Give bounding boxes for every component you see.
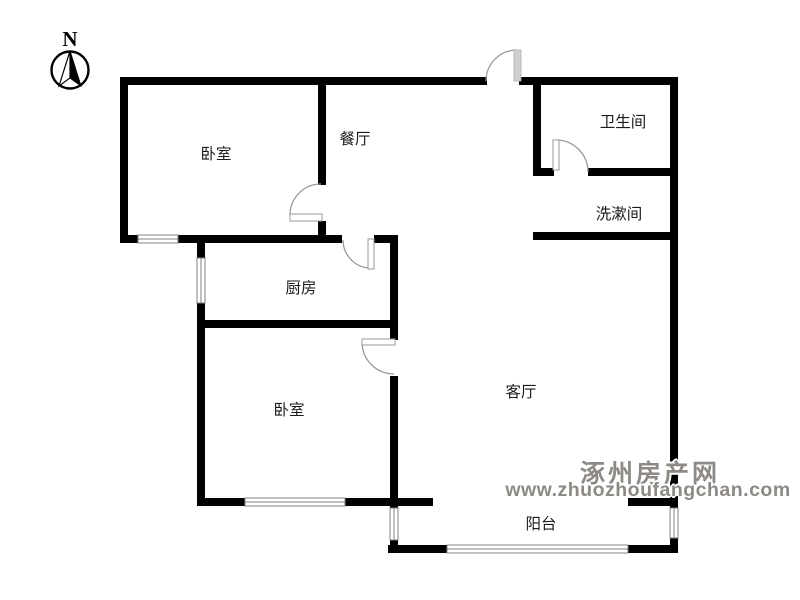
compass-north-icon: N — [52, 27, 89, 89]
window-balcony-right — [670, 508, 678, 538]
window-balcony-left — [390, 508, 398, 540]
door-kitchen — [343, 239, 374, 269]
window-bedroom-2 — [245, 498, 345, 506]
room-label-washroom: 洗漱间 — [596, 205, 643, 223]
room-label-bedroom-2: 卧室 — [273, 401, 304, 419]
floor-plan-canvas: N 卧室 餐厅 卫生间 洗漱间 厨房 卧室 客厅 阳台 — [0, 0, 800, 600]
room-label-dining-room: 餐厅 — [339, 130, 370, 148]
floor-plan: N 卧室 餐厅 卫生间 洗漱间 厨房 卧室 客厅 阳台 涿州房产网 www.zh… — [0, 0, 800, 600]
window-kitchen — [197, 258, 205, 303]
compass-letter: N — [62, 27, 77, 51]
room-label-kitchen: 厨房 — [285, 279, 316, 297]
room-label-balcony: 阳台 — [525, 515, 556, 533]
window-balcony-bottom — [447, 545, 628, 553]
room-label-bathroom: 卫生间 — [600, 113, 647, 131]
room-label-bedroom-1: 卧室 — [200, 145, 231, 163]
door-entry — [486, 50, 521, 81]
window-bedroom-1 — [138, 235, 178, 243]
door-bathroom — [553, 140, 588, 172]
room-label-living-room: 客厅 — [505, 383, 536, 401]
door-bedroom-1 — [290, 184, 322, 221]
watermark-site-url: www.zhuozhoufangchan.com — [505, 479, 790, 502]
door-bedroom-2 — [362, 339, 395, 374]
